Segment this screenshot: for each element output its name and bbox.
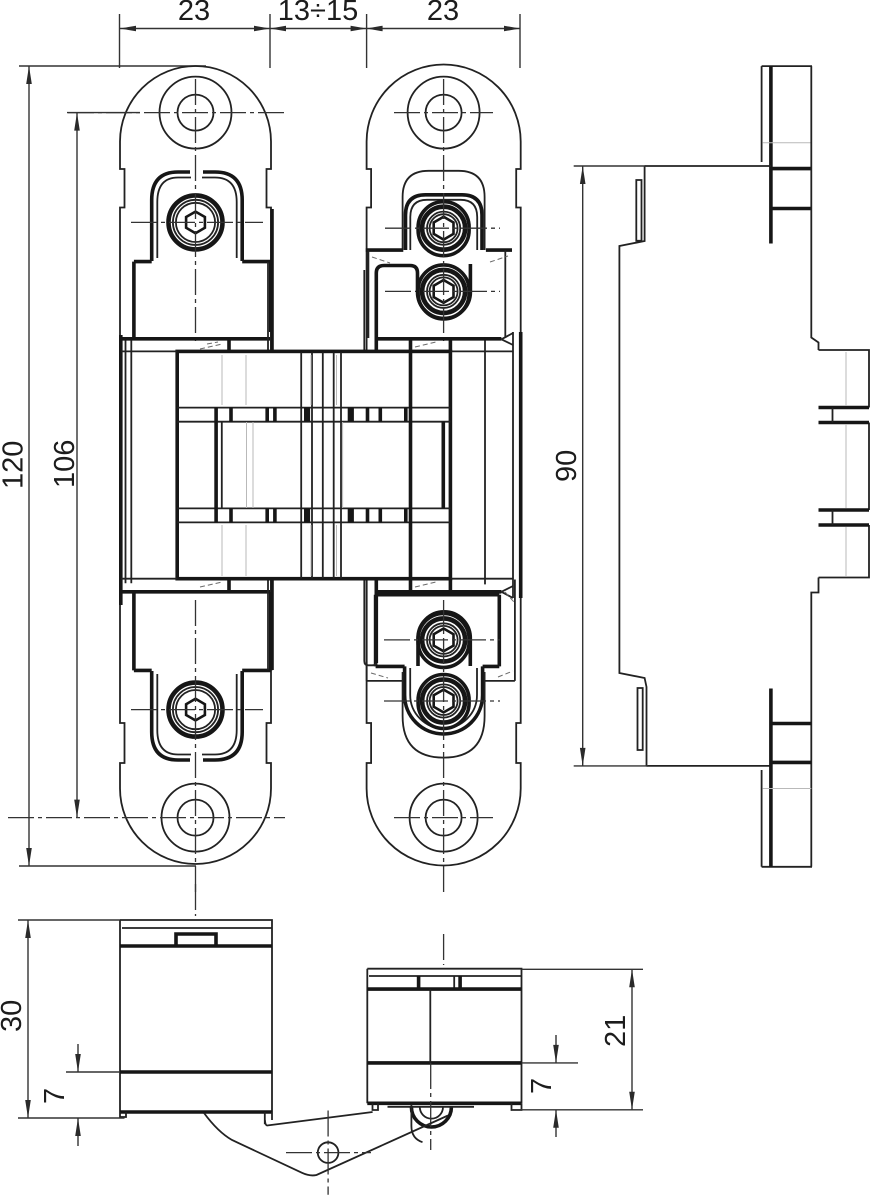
svg-text:106: 106 (49, 440, 81, 488)
svg-text:30: 30 (0, 1000, 28, 1032)
svg-text:23: 23 (427, 0, 459, 27)
svg-text:7: 7 (39, 1088, 71, 1104)
svg-text:120: 120 (0, 441, 30, 489)
svg-text:21: 21 (600, 1015, 632, 1047)
svg-text:23: 23 (178, 0, 210, 27)
svg-text:90: 90 (551, 450, 583, 482)
svg-text:7: 7 (526, 1078, 558, 1094)
svg-text:13÷15: 13÷15 (278, 0, 358, 27)
